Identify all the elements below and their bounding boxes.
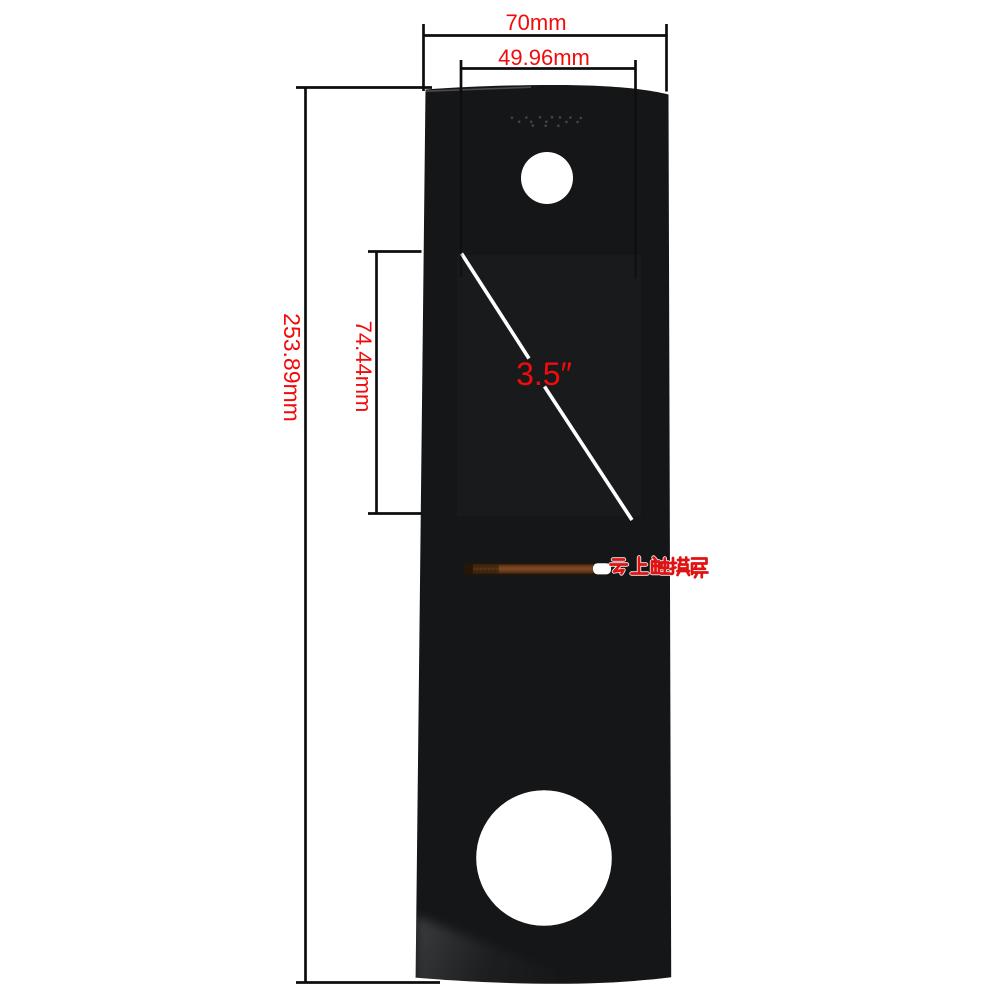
svg-text:74.44mm: 74.44mm [351, 321, 376, 413]
svg-text:70mm: 70mm [505, 10, 566, 35]
svg-text:253.89mm: 253.89mm [279, 313, 305, 422]
svg-text:3.5″: 3.5″ [516, 356, 572, 392]
svg-text:49.96mm: 49.96mm [498, 45, 590, 70]
